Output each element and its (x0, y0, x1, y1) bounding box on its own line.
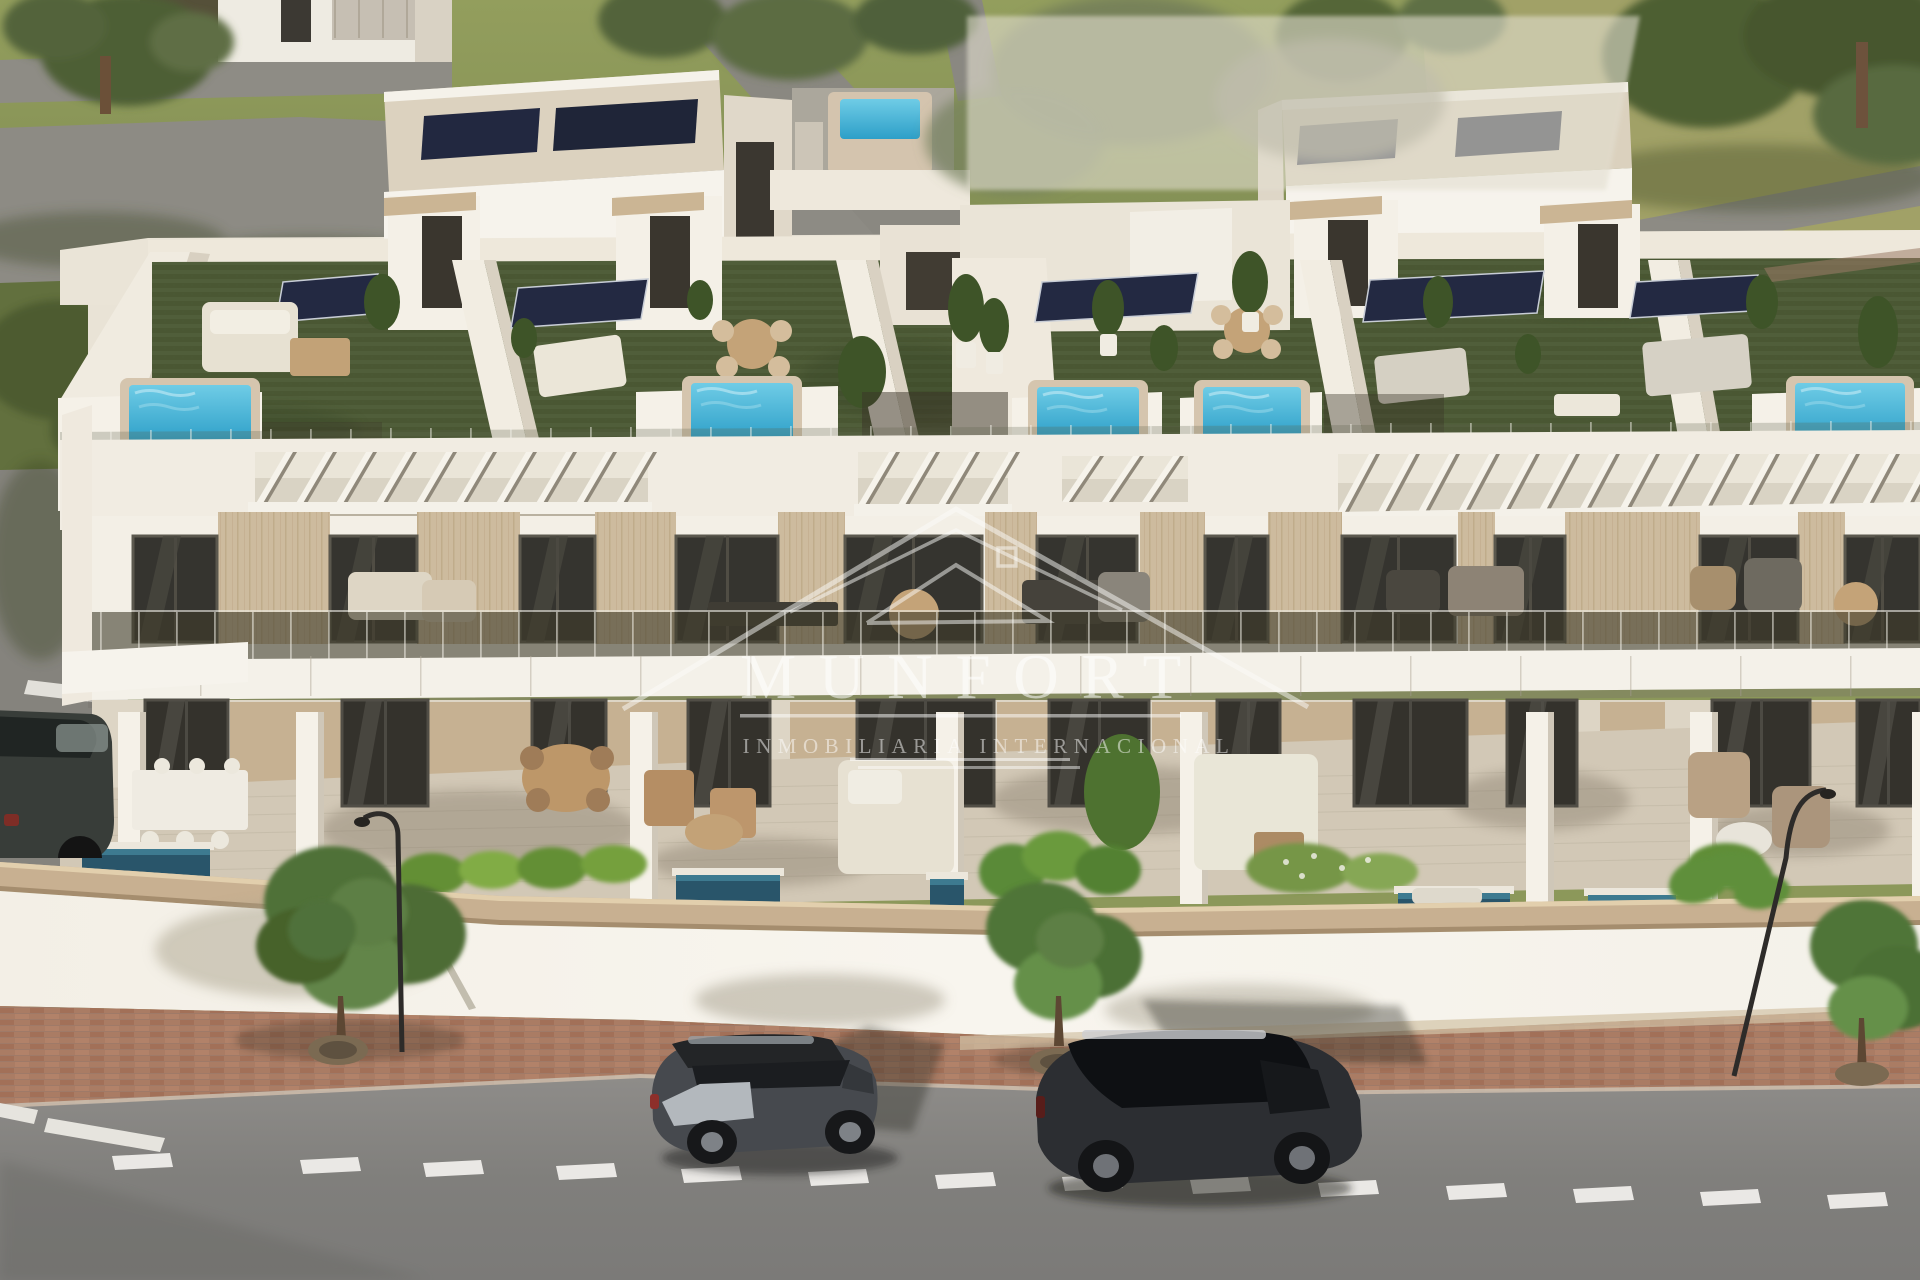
svg-text:INMOBILIARIA INTERNACIONAL: INMOBILIARIA INTERNACIONAL (743, 734, 1236, 758)
svg-text:MUNFORT: MUNFORT (740, 642, 1204, 712)
